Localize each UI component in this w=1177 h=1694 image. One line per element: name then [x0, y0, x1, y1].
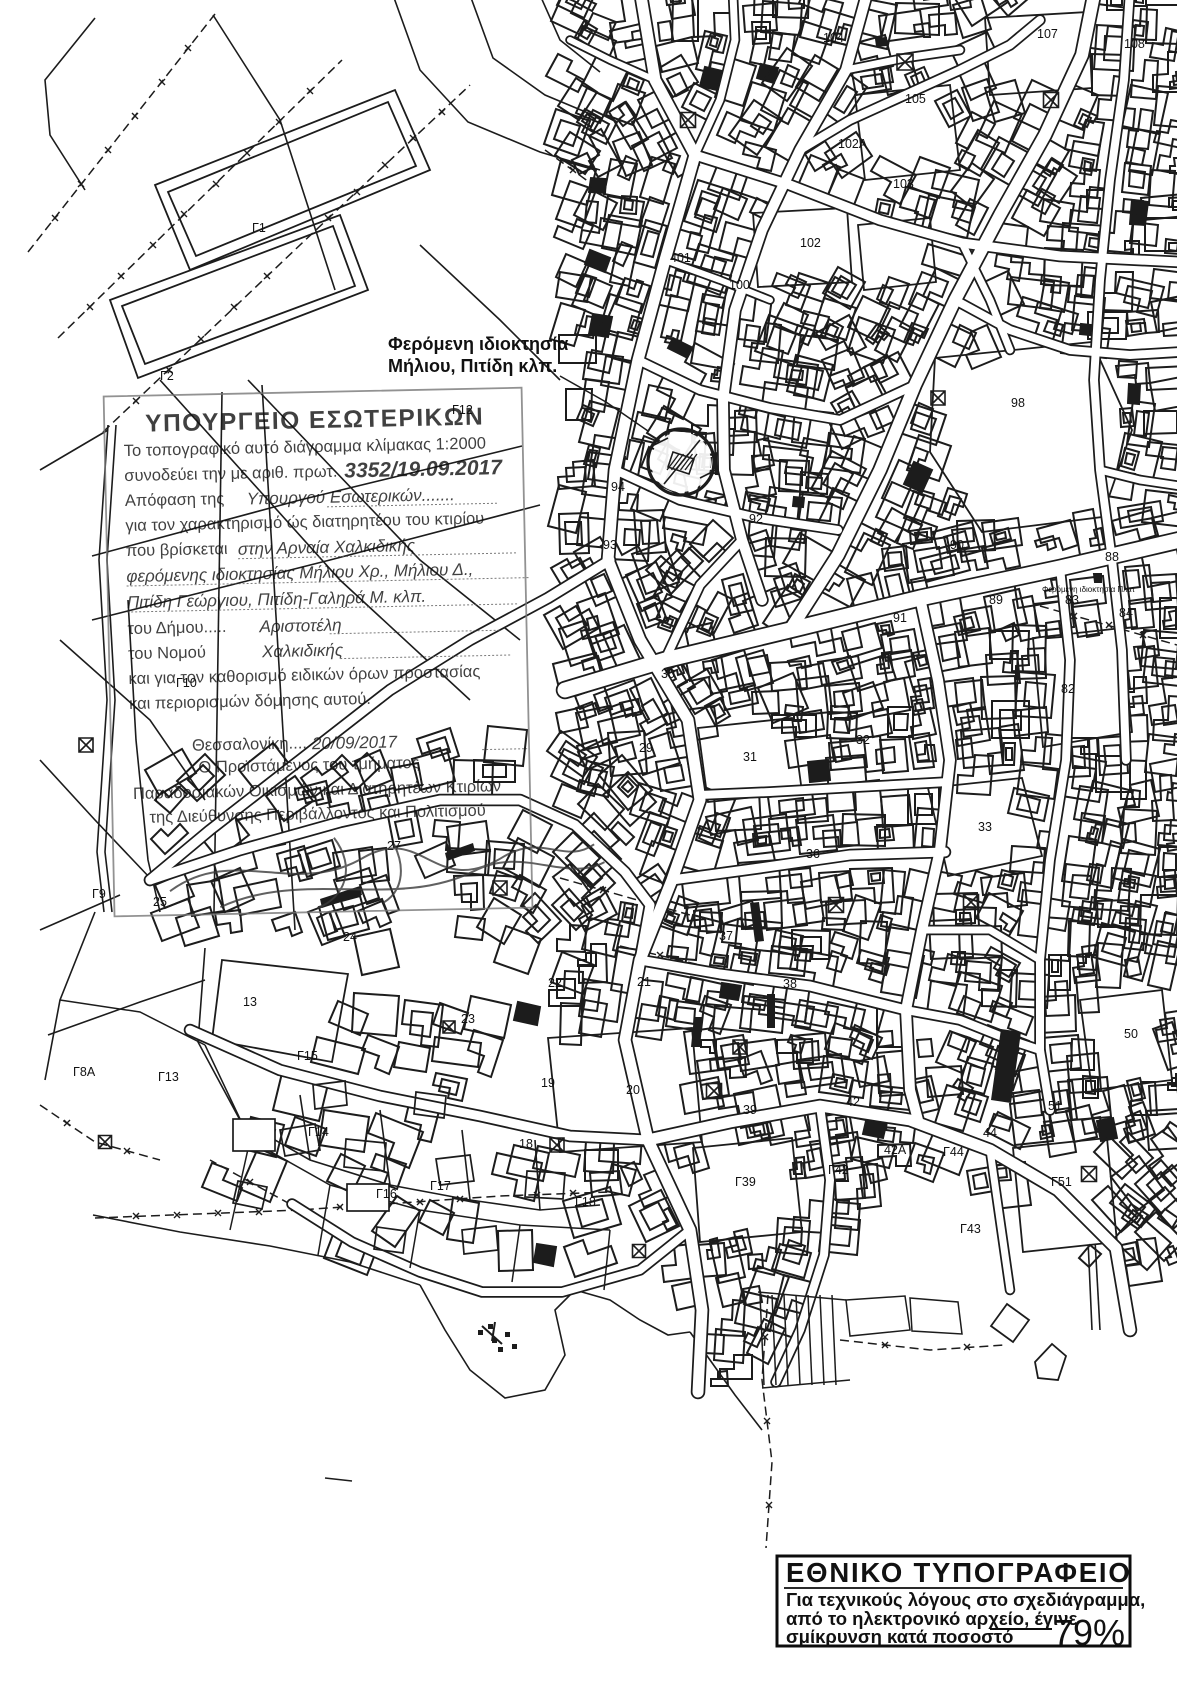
svg-text:102A: 102A — [838, 137, 868, 151]
svg-text:Γ16: Γ16 — [376, 1187, 397, 1201]
svg-text:89: 89 — [989, 593, 1003, 607]
svg-text:30: 30 — [661, 667, 675, 681]
svg-text:Γ17: Γ17 — [430, 1179, 451, 1193]
svg-text:Απόφαση της: Απόφαση της — [125, 490, 225, 510]
svg-text:Γ8Α: Γ8Α — [73, 1065, 96, 1079]
svg-text:105: 105 — [905, 92, 926, 106]
svg-text:36: 36 — [806, 847, 820, 861]
svg-text:94: 94 — [611, 480, 625, 494]
svg-text:σμίκρυνση κατά ποσοστό: σμίκρυνση κατά ποσοστό — [786, 1626, 1013, 1647]
svg-text:Γ18: Γ18 — [575, 1195, 596, 1209]
svg-text:103: 103 — [893, 177, 914, 191]
svg-text:19: 19 — [541, 1076, 555, 1090]
svg-text:92: 92 — [749, 512, 763, 526]
svg-text:Γ39: Γ39 — [735, 1175, 756, 1189]
svg-text:3352/19.09.2017: 3352/19.09.2017 — [344, 456, 503, 482]
svg-text:42Α: 42Α — [884, 1143, 907, 1157]
svg-text:42: 42 — [846, 1095, 860, 1109]
svg-text:104: 104 — [823, 31, 844, 45]
svg-text:44: 44 — [983, 1126, 997, 1140]
svg-text:20: 20 — [626, 1083, 640, 1097]
svg-text:18: 18 — [519, 1137, 533, 1151]
svg-text:Γ51: Γ51 — [1051, 1175, 1072, 1189]
svg-text:Γ2: Γ2 — [160, 369, 174, 383]
svg-text:93: 93 — [603, 538, 617, 552]
svg-text:Θεσσαλονίκη....: Θεσσαλονίκη.... — [192, 734, 307, 754]
svg-text:24: 24 — [343, 930, 357, 944]
svg-text:401: 401 — [670, 251, 691, 265]
svg-text:100: 100 — [729, 278, 750, 292]
svg-text:13: 13 — [243, 995, 257, 1009]
svg-text:39: 39 — [743, 1103, 757, 1117]
svg-text:91: 91 — [893, 611, 907, 625]
svg-text:108: 108 — [1124, 37, 1145, 51]
svg-text:Γ13: Γ13 — [158, 1070, 179, 1084]
svg-text:Γ15: Γ15 — [297, 1049, 318, 1063]
svg-text:Γ42: Γ42 — [828, 1163, 849, 1177]
svg-text:22: 22 — [548, 976, 562, 990]
svg-text:50: 50 — [1124, 1027, 1138, 1041]
svg-text:31: 31 — [743, 750, 757, 764]
svg-text:25: 25 — [153, 895, 167, 909]
svg-text:29: 29 — [639, 741, 653, 755]
svg-text:21: 21 — [637, 975, 651, 989]
svg-text:Γ14: Γ14 — [308, 1125, 329, 1139]
svg-text:20/09/2017: 20/09/2017 — [311, 732, 398, 753]
svg-text:88: 88 — [1105, 550, 1119, 564]
svg-text:Γ44: Γ44 — [943, 1145, 964, 1159]
svg-text:ΕΘΝΙΚΟ ΤΥΠΟΓΡΑΦΕΙΟ: ΕΘΝΙΚΟ ΤΥΠΟΓΡΑΦΕΙΟ — [786, 1557, 1132, 1588]
svg-text:του Νομού: του Νομού — [128, 643, 206, 663]
svg-text:83: 83 — [1065, 593, 1079, 607]
svg-text:79%: 79% — [1053, 1612, 1125, 1653]
svg-text:Φερόμενη ιδιοκτησία: Φερόμενη ιδιοκτησία — [388, 334, 568, 354]
svg-text:του Δήμου.....: του Δήμου..... — [127, 618, 226, 638]
svg-text:Μήλιου, Πιτίδη κλπ.: Μήλιου, Πιτίδη κλπ. — [388, 356, 557, 376]
svg-text:90: 90 — [950, 538, 964, 552]
svg-text:Για τεχνικούς λόγους στο σχεδι: Για τεχνικούς λόγους στο σχεδιάγραμμα, — [786, 1589, 1145, 1610]
svg-text:33: 33 — [978, 820, 992, 834]
svg-text:84: 84 — [1119, 606, 1133, 620]
svg-text:51: 51 — [1048, 1099, 1062, 1113]
svg-text:Χαλκιδικής: Χαλκιδικής — [261, 641, 344, 662]
svg-text:102: 102 — [800, 236, 821, 250]
svg-text:Γ9: Γ9 — [92, 887, 106, 901]
svg-text:Αριστοτέλη: Αριστοτέλη — [258, 616, 341, 637]
svg-text:38: 38 — [783, 977, 797, 991]
svg-text:που βρίσκεται: που βρίσκεται — [126, 540, 228, 560]
svg-text:23: 23 — [461, 1012, 475, 1026]
svg-text:Γ1: Γ1 — [252, 221, 266, 235]
svg-text:Γ43: Γ43 — [960, 1222, 981, 1236]
svg-text:Φερόμενη ιδιοκτησία Πλατ: Φερόμενη ιδιοκτησία Πλατ — [1042, 585, 1136, 594]
svg-text:107: 107 — [1037, 27, 1058, 41]
svg-text:στην Αρναία Χαλκιδικής: στην Αρναία Χαλκιδικής — [238, 536, 416, 559]
svg-text:82: 82 — [1061, 682, 1075, 696]
svg-text:37: 37 — [719, 929, 733, 943]
svg-text:98: 98 — [1011, 396, 1025, 410]
svg-text:32: 32 — [856, 733, 870, 747]
